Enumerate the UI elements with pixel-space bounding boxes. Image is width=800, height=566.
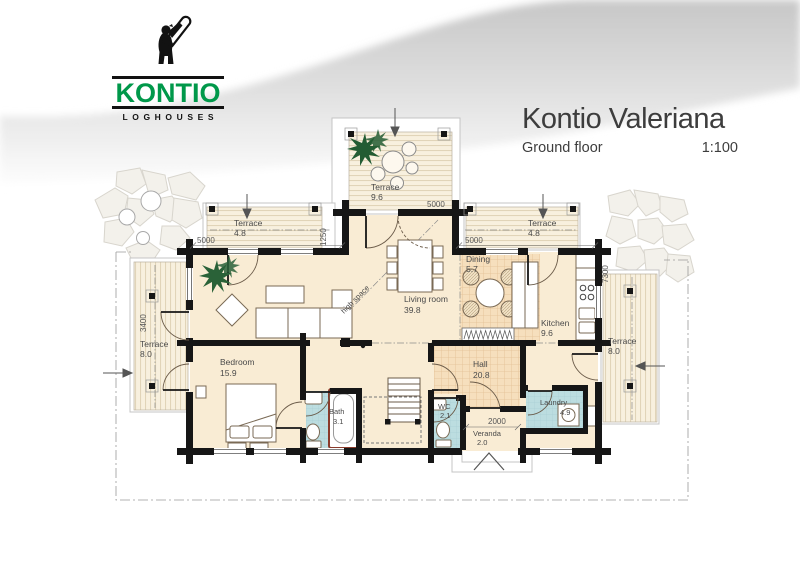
stone-patio-right bbox=[606, 190, 694, 282]
dim-left-depth: 3400 bbox=[139, 314, 148, 332]
area-terrace-west: 8.0 bbox=[140, 349, 152, 359]
dim-top-right: 5000 bbox=[465, 236, 483, 245]
dim-bay-offset: 1250 bbox=[319, 228, 328, 246]
label-laundry: Laundry bbox=[540, 398, 567, 407]
label-terrace-ne: Terrace bbox=[528, 218, 557, 228]
area-bedroom: 15.9 bbox=[220, 368, 237, 378]
dim-veranda-width: 2000 bbox=[488, 417, 506, 426]
area-dining: 5.7 bbox=[466, 264, 478, 274]
area-terrace-east: 8.0 bbox=[608, 346, 620, 356]
label-terrace-west: Terrace bbox=[140, 339, 169, 349]
label-hall: Hall bbox=[473, 359, 488, 369]
label-terrace-nw: Terrace bbox=[234, 218, 263, 228]
area-veranda: 2.0 bbox=[477, 438, 487, 447]
label-living-room: Living room bbox=[404, 294, 448, 304]
area-terrace-nw: 4.8 bbox=[234, 228, 246, 238]
area-laundry: 4.9 bbox=[560, 408, 570, 417]
terrace-nw-deck bbox=[207, 207, 322, 248]
floor-plan: Terrace 9.6 Terrace 4.8 Terrace 4.8 Dini… bbox=[0, 0, 800, 566]
label-bath: Bath bbox=[329, 407, 344, 416]
radiator bbox=[462, 328, 514, 341]
label-wc: WC bbox=[438, 402, 451, 411]
area-living-room: 39.8 bbox=[404, 305, 421, 315]
terrace-west-deck bbox=[134, 262, 188, 410]
area-wc: 2.1 bbox=[440, 411, 450, 420]
area-terrace-ne: 4.8 bbox=[528, 228, 540, 238]
area-kitchen: 9.6 bbox=[541, 328, 553, 338]
label-veranda: Veranda bbox=[473, 429, 502, 438]
area-hall: 20.8 bbox=[473, 370, 490, 380]
dim-right-depth: 7300 bbox=[601, 265, 610, 283]
label-bedroom: Bedroom bbox=[220, 357, 255, 367]
dim-terrace-top: 5000 bbox=[427, 200, 445, 209]
label-terrace-top: Terrace bbox=[371, 182, 400, 192]
area-bath: 3.1 bbox=[333, 417, 343, 426]
hall-floor2 bbox=[462, 394, 520, 408]
label-terrace-east: Terrace bbox=[608, 336, 637, 346]
label-dining: Dining bbox=[466, 254, 490, 264]
page: KONTIO LOGHOUSES Kontio Valeriana Ground… bbox=[0, 0, 800, 566]
terrace-ne-deck bbox=[466, 207, 578, 248]
label-kitchen: Kitchen bbox=[541, 318, 570, 328]
area-terrace-top: 9.6 bbox=[371, 192, 383, 202]
dim-top-left: 5000 bbox=[197, 236, 215, 245]
